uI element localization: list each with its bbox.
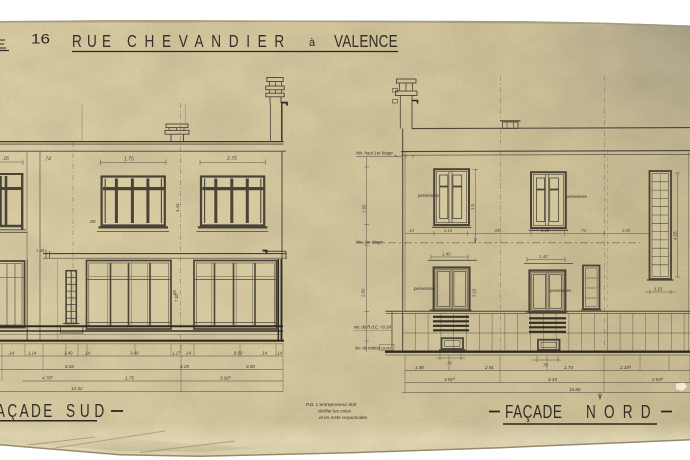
svg-text:5.33: 5.33 — [65, 364, 74, 369]
svg-text:VALENCE: VALENCE — [334, 32, 398, 51]
svg-text:2.75: 2.75 — [226, 156, 237, 162]
svg-text:1.15: 1.15 — [654, 287, 663, 292]
svg-text:1.40: 1.40 — [539, 254, 548, 259]
svg-text:12.32: 12.32 — [71, 386, 83, 391]
svg-text:FAÇADE: FAÇADE — [505, 402, 562, 422]
svg-text:FAÇADE: FAÇADE — [0, 401, 52, 421]
svg-text:persiennes: persiennes — [417, 193, 440, 198]
svg-text:.14: .14 — [84, 351, 91, 356]
svg-text:.70: .70 — [446, 361, 452, 366]
svg-text:2.91: 2.91 — [484, 365, 494, 370]
svg-text:Niv. 1er étage: Niv. 1er étage — [356, 240, 384, 245]
svg-text:±0.00: ±0.00 — [381, 345, 392, 350]
svg-text:1.17: 1.17 — [172, 351, 181, 356]
svg-text:16.86: 16.86 — [569, 387, 581, 392]
svg-text:P.D. L'entrepreneur doit: P.D. L'entrepreneur doit — [306, 402, 357, 408]
svg-text:et en reste responsable.: et en reste responsable. — [319, 415, 368, 420]
svg-text:RUE: RUE — [72, 32, 111, 51]
svg-text:.80: .80 — [89, 219, 96, 224]
svg-text:3.40: 3.40 — [130, 351, 139, 356]
svg-text:1.40: 1.40 — [64, 351, 73, 356]
svg-text:persiennes: persiennes — [413, 286, 436, 291]
svg-text:.74: .74 — [44, 157, 51, 163]
svg-text:1.5: 1.5 — [470, 204, 475, 210]
svg-text:2.00: 2.00 — [361, 288, 366, 297]
svg-text:16: 16 — [31, 32, 50, 47]
svg-text:niv. du trottoir: niv. du trottoir — [355, 346, 381, 351]
svg-text:+.44: +.44 — [36, 248, 45, 253]
svg-text:4.28: 4.28 — [673, 231, 678, 240]
svg-text:4.25: 4.25 — [180, 364, 189, 369]
svg-text:.16: .16 — [2, 156, 9, 162]
svg-text:1.90: 1.90 — [415, 365, 424, 370]
svg-text:.70: .70 — [542, 363, 548, 368]
svg-text:.14: .14 — [276, 351, 283, 356]
svg-text:1.15: 1.15 — [444, 228, 453, 233]
svg-text:1.74: 1.74 — [564, 365, 573, 370]
svg-text:1.75: 1.75 — [125, 376, 134, 381]
svg-text:2.05: 2.05 — [621, 228, 631, 233]
svg-text:niv. du R.d.C. +0.34: niv. du R.d.C. +0.34 — [354, 325, 391, 330]
svg-text:.95: .95 — [494, 228, 500, 233]
svg-text:vérifier les cotes: vérifier les cotes — [318, 409, 352, 414]
svg-text:1.75: 1.75 — [124, 157, 134, 163]
svg-text:4.44: 4.44 — [175, 203, 180, 212]
svg-text:1.14: 1.14 — [28, 351, 37, 356]
svg-text:.74: .74 — [580, 228, 586, 233]
svg-text:.15: .15 — [408, 228, 414, 233]
svg-text:.14: .14 — [261, 351, 268, 356]
svg-text:3.00: 3.00 — [246, 364, 255, 369]
svg-text:8.00: 8.00 — [234, 351, 243, 356]
svg-text:persiennes: persiennes — [565, 194, 588, 199]
svg-text:1.40: 1.40 — [442, 252, 451, 257]
svg-text:Niv. haut 1er étage: Niv. haut 1er étage — [356, 151, 393, 156]
svg-text:à: à — [309, 37, 316, 49]
svg-text:persiennes: persiennes — [549, 288, 572, 293]
svg-text:2.10: 2.10 — [472, 288, 477, 297]
svg-text:SUD: SUD — [66, 401, 104, 421]
svg-text:1.55: 1.55 — [362, 204, 367, 213]
svg-text:.14: .14 — [8, 351, 15, 356]
svg-text:.14: .14 — [185, 351, 192, 356]
svg-text:4.15: 4.15 — [548, 377, 557, 382]
svg-text:.50: .50 — [172, 290, 177, 296]
